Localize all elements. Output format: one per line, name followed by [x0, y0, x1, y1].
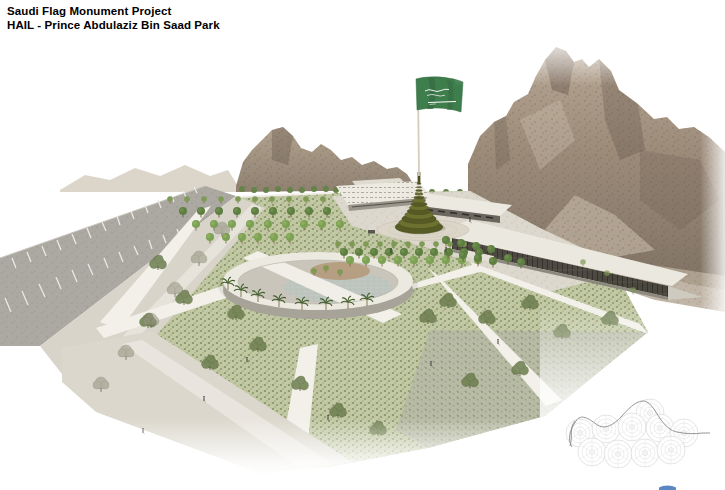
title-block: Saudi Flag Monument Project HAIL - Princ… [7, 4, 220, 32]
project-title: Saudi Flag Monument Project [7, 4, 220, 18]
service-vehicle [368, 230, 375, 234]
presentation-sheet: Saudi Flag Monument Project HAIL - Princ… [0, 0, 725, 490]
project-subtitle: HAIL - Prince Abdulaziz Bin Saad Park [7, 18, 220, 32]
park-rendering [0, 0, 725, 490]
